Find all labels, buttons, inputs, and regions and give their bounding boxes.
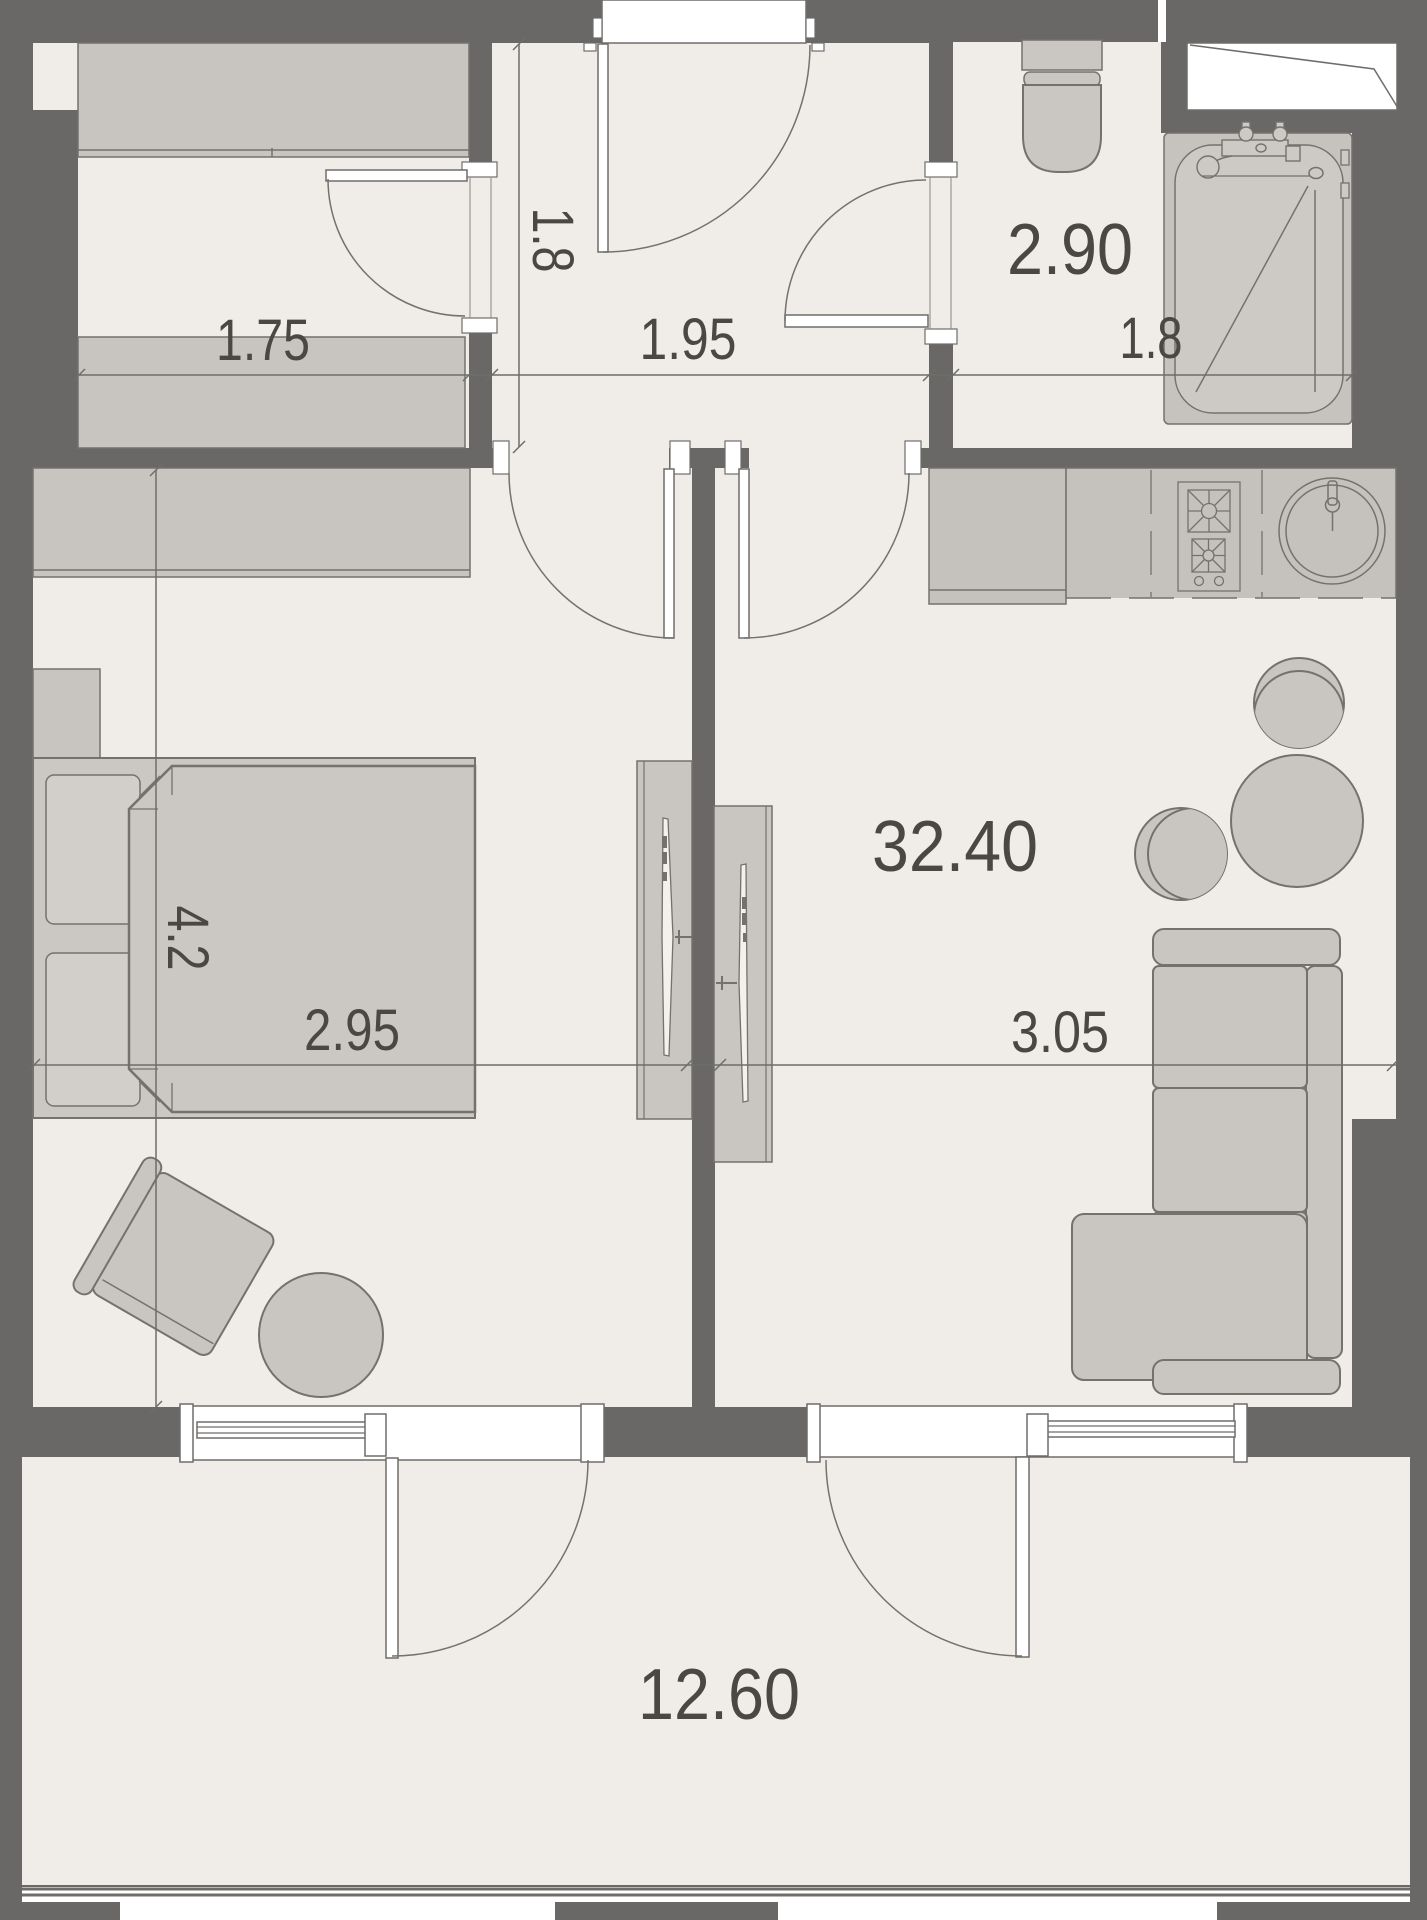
svg-text:3.05: 3.05: [1011, 1000, 1109, 1065]
svg-text:1.75: 1.75: [216, 308, 310, 373]
svg-text:12.60: 12.60: [638, 1655, 800, 1735]
svg-text:1.8: 1.8: [520, 208, 585, 273]
svg-text:2.95: 2.95: [304, 998, 400, 1063]
svg-text:32.40: 32.40: [872, 807, 1038, 887]
svg-text:4.2: 4.2: [155, 906, 220, 971]
svg-text:2.90: 2.90: [1007, 210, 1133, 290]
svg-text:1.95: 1.95: [640, 307, 737, 372]
svg-text:1.8: 1.8: [1120, 306, 1183, 371]
